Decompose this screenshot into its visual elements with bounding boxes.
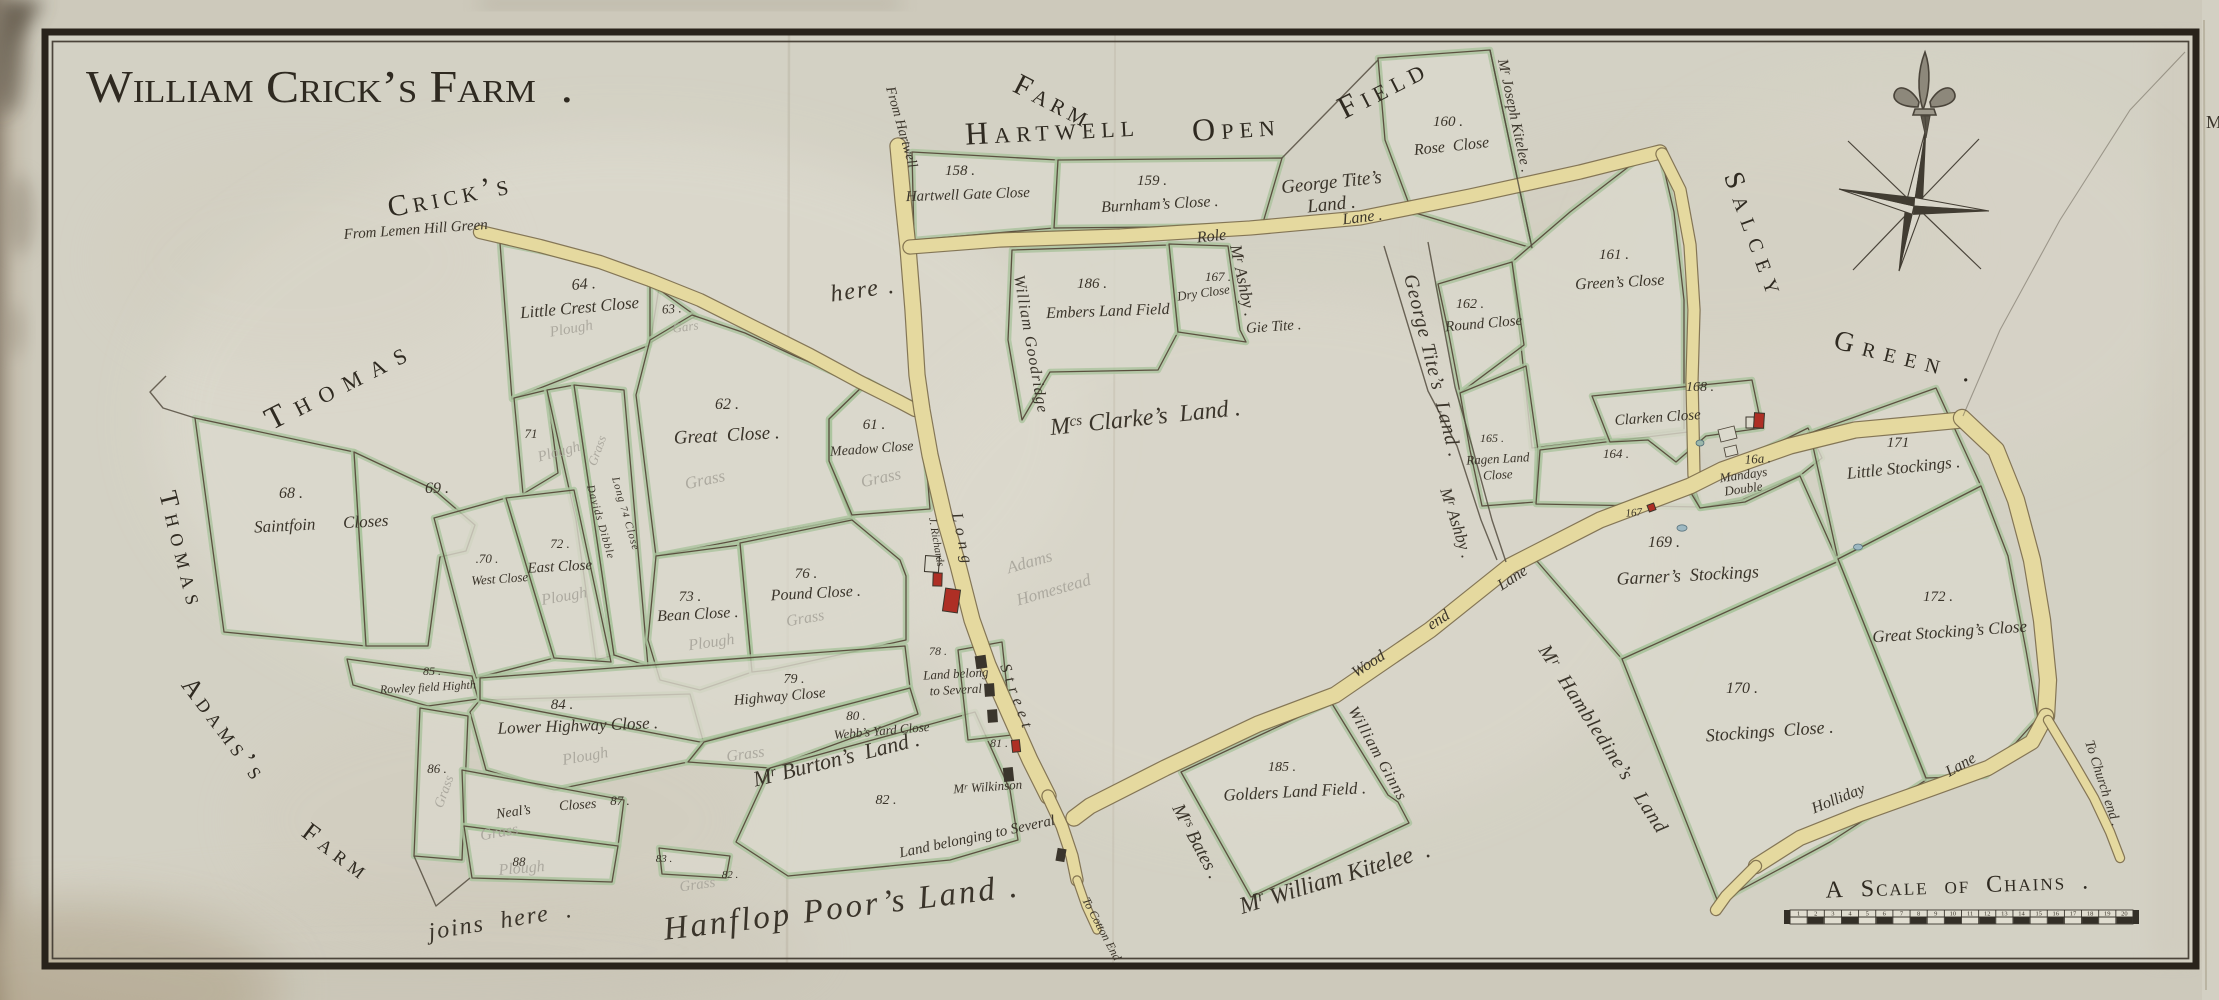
- svg-text:82 .: 82 .: [876, 793, 897, 808]
- svg-text:2: 2: [1814, 911, 1817, 918]
- svg-text:69 .: 69 .: [425, 480, 449, 497]
- svg-text:158 .: 158 .: [945, 163, 975, 179]
- svg-text:71: 71: [525, 426, 538, 441]
- svg-text:82 .: 82 .: [722, 869, 739, 881]
- svg-text:16a .: 16a .: [1744, 450, 1771, 467]
- svg-text:63 .: 63 .: [661, 300, 681, 316]
- svg-text:186 .: 186 .: [1077, 276, 1107, 292]
- svg-text:168 .: 168 .: [1686, 380, 1714, 395]
- svg-text:9: 9: [1934, 911, 1937, 918]
- svg-text:17: 17: [2070, 911, 2077, 918]
- svg-text:159 .: 159 .: [1137, 173, 1167, 189]
- svg-text:Closes: Closes: [559, 797, 598, 815]
- svg-text:19: 19: [2104, 911, 2111, 918]
- svg-text:81 .: 81 .: [990, 736, 1008, 750]
- svg-text:Close: Close: [1483, 466, 1514, 483]
- svg-text:80 .: 80 .: [846, 708, 866, 723]
- svg-text:1: 1: [1797, 911, 1800, 918]
- svg-text:78 .: 78 .: [929, 644, 947, 658]
- svg-text:18: 18: [2087, 911, 2094, 918]
- svg-text:10: 10: [1950, 911, 1957, 918]
- svg-text:to Several: to Several: [929, 681, 982, 699]
- svg-text:Open: Open: [1191, 106, 1282, 148]
- svg-text:11: 11: [1967, 911, 1973, 918]
- svg-text:13: 13: [2001, 911, 2008, 918]
- svg-text:12: 12: [1984, 911, 1991, 918]
- svg-text:8: 8: [1917, 911, 1920, 918]
- svg-text:76 .: 76 .: [795, 566, 818, 582]
- svg-text:Closes: Closes: [343, 511, 390, 532]
- svg-text:5: 5: [1866, 911, 1869, 918]
- svg-text:Saintfoin: Saintfoin: [254, 514, 316, 536]
- svg-text:171: 171: [1887, 435, 1910, 451]
- svg-text:William Crick’s Farm .: William Crick’s Farm .: [86, 61, 573, 112]
- svg-text:79 .: 79 .: [784, 672, 805, 687]
- svg-text:.70 .: .70 .: [476, 551, 499, 566]
- svg-text:169 .: 169 .: [1648, 534, 1680, 551]
- svg-text:72 .: 72 .: [550, 536, 570, 551]
- svg-text:172 .: 172 .: [1923, 589, 1953, 605]
- svg-text:160 .: 160 .: [1433, 114, 1463, 130]
- svg-text:165 .: 165 .: [1480, 431, 1504, 445]
- svg-text:170 .: 170 .: [1726, 680, 1758, 697]
- svg-text:167: 167: [1625, 506, 1643, 519]
- svg-text:3: 3: [1831, 911, 1834, 918]
- svg-text:61 .: 61 .: [863, 417, 886, 433]
- svg-text:20: 20: [2121, 911, 2128, 918]
- svg-text:162 .: 162 .: [1456, 297, 1484, 312]
- svg-text:14: 14: [2018, 911, 2025, 918]
- svg-text:68 .: 68 .: [279, 485, 303, 502]
- svg-text:161 .: 161 .: [1599, 247, 1629, 263]
- svg-text:73 .: 73 .: [679, 589, 702, 605]
- svg-text:185 .: 185 .: [1268, 760, 1296, 775]
- svg-text:64 .: 64 .: [571, 275, 596, 294]
- svg-text:Role: Role: [1195, 227, 1227, 247]
- svg-text:87 .: 87 .: [610, 793, 630, 808]
- svg-text:16: 16: [2053, 911, 2060, 918]
- svg-text:85 .: 85 .: [423, 664, 441, 678]
- svg-text:62 .: 62 .: [715, 396, 739, 413]
- svg-text:15: 15: [2035, 911, 2042, 918]
- svg-text:83 .: 83 .: [656, 853, 673, 865]
- svg-text:164 .: 164 .: [1603, 446, 1629, 461]
- svg-text:84 .: 84 .: [551, 697, 574, 713]
